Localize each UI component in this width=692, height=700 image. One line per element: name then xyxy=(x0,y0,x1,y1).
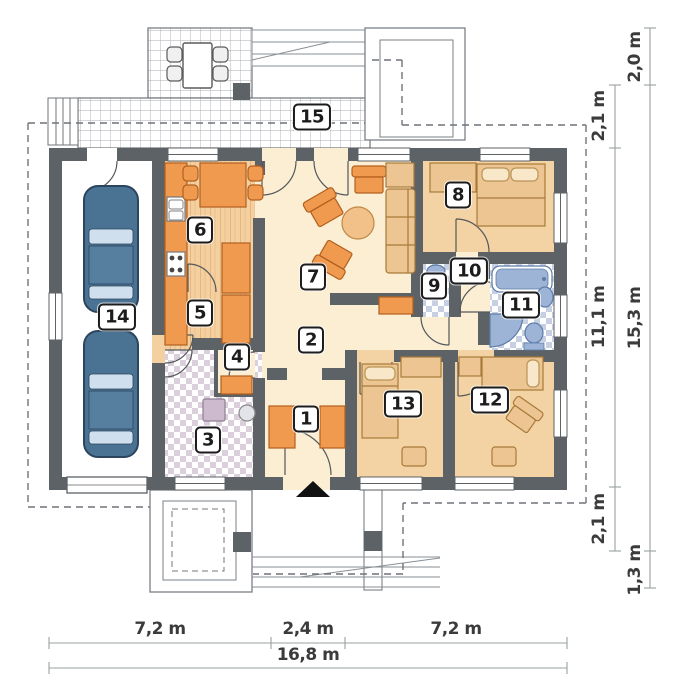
dim-bottom-total: 16,8 m xyxy=(277,645,340,665)
pillow xyxy=(482,168,509,181)
closet-wardrobe xyxy=(221,376,252,394)
window xyxy=(455,477,514,490)
room-label-9: 9 xyxy=(421,273,447,300)
kitchen-cabinet xyxy=(222,295,250,343)
terrace-ramp xyxy=(252,30,365,66)
terrace xyxy=(48,28,382,148)
room-label-5: 5 xyxy=(187,300,213,327)
side-structure xyxy=(365,28,465,140)
car xyxy=(84,186,138,312)
dim-outer-bottom: 1,3 m xyxy=(625,544,645,595)
porch-pillar xyxy=(233,532,251,552)
desk xyxy=(492,447,516,466)
room-label-4: 4 xyxy=(224,344,250,371)
window xyxy=(360,477,422,490)
room-label-14: 14 xyxy=(98,304,136,331)
dining-chair xyxy=(183,185,198,200)
car xyxy=(84,331,138,457)
pillow xyxy=(511,168,538,181)
window xyxy=(49,293,62,340)
room-label-6: 6 xyxy=(187,217,213,244)
terrace-chair xyxy=(167,47,182,62)
kitchen-stove xyxy=(167,252,185,276)
room-label-8: 8 xyxy=(445,182,471,209)
coffee-table xyxy=(342,207,374,239)
pillow xyxy=(365,367,395,380)
dim-outer-top: 2,0 m xyxy=(625,31,645,82)
nightstand xyxy=(459,357,481,376)
terrace-dining-set xyxy=(167,43,228,88)
room-label-7: 7 xyxy=(300,264,326,291)
armchair xyxy=(352,166,386,193)
window xyxy=(554,193,567,243)
window xyxy=(554,295,567,337)
terrace-steps xyxy=(48,98,78,145)
washing-machine xyxy=(203,399,225,421)
window xyxy=(480,148,530,161)
kitchen-cabinet xyxy=(222,243,250,293)
dining-chair xyxy=(248,166,263,181)
entrance-steps xyxy=(252,557,440,587)
room-label-12: 12 xyxy=(471,387,509,414)
floor-plan: 1 2 3 4 5 6 7 8 9 10 11 12 13 14 15 7,2 … xyxy=(0,0,692,700)
window xyxy=(168,148,218,161)
dining-chair xyxy=(248,185,263,200)
terrace-table xyxy=(183,43,212,88)
dim-right-middle: 11,1 m xyxy=(589,286,609,349)
dim-bottom-middle: 2,4 m xyxy=(282,619,333,639)
dim-right-bottom: 2,1 m xyxy=(589,493,609,544)
hall-closet xyxy=(320,406,345,448)
entrance-porch xyxy=(150,490,440,592)
dim-bottom-left: 7,2 m xyxy=(134,619,185,639)
window xyxy=(358,148,410,161)
room-label-11: 11 xyxy=(502,292,540,319)
wardrobe xyxy=(401,357,441,377)
toilet xyxy=(525,323,543,343)
terrace-chair xyxy=(167,66,182,81)
dining-table xyxy=(200,163,246,207)
hall-closet xyxy=(269,406,295,448)
dim-right-top: 2,1 m xyxy=(589,90,609,141)
cabinet xyxy=(386,163,414,187)
terrace-pillar xyxy=(233,83,250,100)
room-label-2: 2 xyxy=(298,327,324,354)
room-label-15: 15 xyxy=(293,104,331,131)
pillow xyxy=(527,360,539,387)
window xyxy=(554,390,567,437)
desk xyxy=(402,447,426,466)
terrace-chair xyxy=(213,47,228,62)
room-label-10: 10 xyxy=(450,258,488,285)
tv-console xyxy=(379,297,413,314)
room-label-1: 1 xyxy=(293,406,319,433)
dim-outer-total: 15,3 m xyxy=(625,287,645,350)
room-label-13: 13 xyxy=(384,391,422,418)
terrace-chair xyxy=(213,66,228,81)
sofa xyxy=(386,189,415,273)
utility-sink xyxy=(239,405,255,421)
window xyxy=(175,477,225,490)
dim-bottom-right: 7,2 m xyxy=(430,619,481,639)
porch-pillar xyxy=(364,531,382,551)
dining-chair xyxy=(183,166,198,181)
room-label-3: 3 xyxy=(195,427,221,454)
